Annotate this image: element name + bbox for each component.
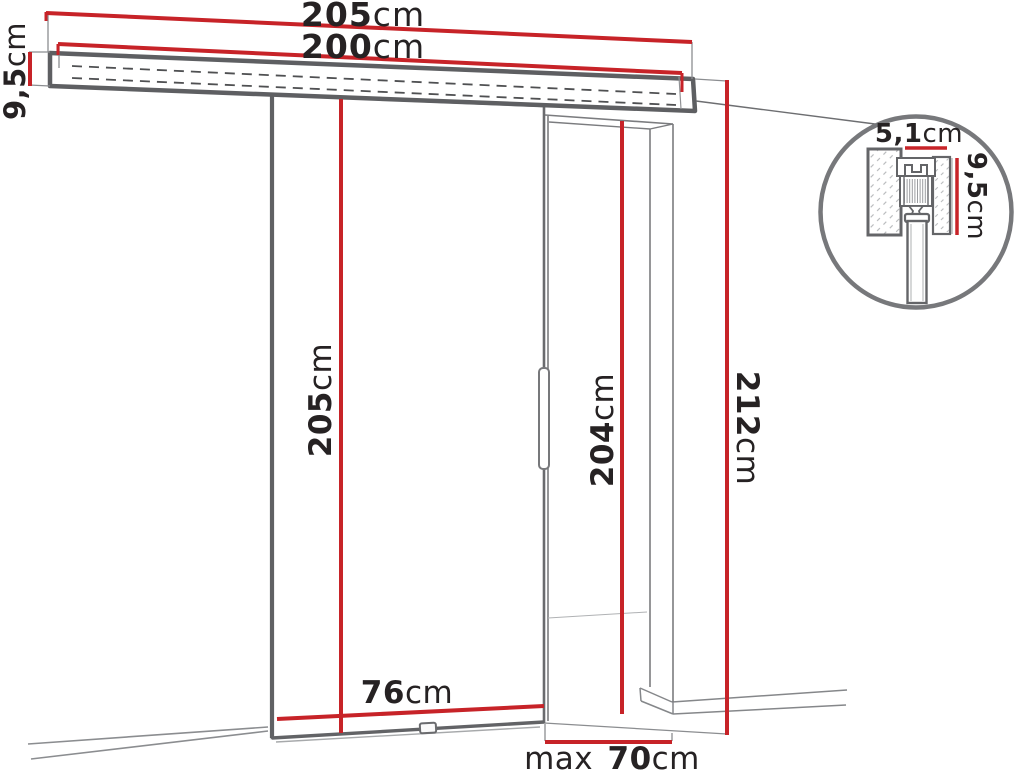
- drawing-canvas: 205cm 200cm 9,5cm 205cm 204cm 212cm 76cm…: [0, 0, 1020, 776]
- dim-rail-height-unit: cm: [0, 22, 32, 67]
- skirting-edge: [640, 688, 641, 701]
- dim-opening-height-value: 204: [585, 421, 621, 487]
- skirting-edge: [640, 688, 672, 702]
- dim-rail-track-value: 200: [301, 27, 373, 66]
- opening-faint-line: [548, 612, 647, 618]
- detail-door-section: [908, 221, 927, 303]
- dim-door-height-value: 205: [303, 391, 339, 457]
- dim-door-width-value: 76: [361, 675, 405, 711]
- dim-opening-width-prefix: max: [524, 741, 603, 776]
- dim-overall-height-value: 212: [729, 371, 765, 437]
- dim-detail-width-value: 5,1: [875, 119, 923, 149]
- floor-guide: [420, 723, 437, 734]
- floor-extension-line: [544, 723, 727, 734]
- door-handle: [539, 368, 549, 469]
- dim-opening-height-unit: cm: [585, 373, 621, 421]
- dim-overall-height-unit: cm: [729, 437, 765, 485]
- dim-detail-height-unit: cm: [961, 199, 991, 240]
- dim-overall-height-label: 212cm: [729, 371, 765, 485]
- dim-detail-width-unit: cm: [922, 119, 963, 149]
- dim-detail-height-value: 9,5: [961, 152, 991, 200]
- skirting-edge: [641, 701, 673, 714]
- door-opening: [544, 115, 727, 734]
- dim-door-height-unit: cm: [303, 343, 339, 391]
- skirting-board-right: [640, 688, 847, 714]
- dim-door-width-label: 76cm: [361, 675, 453, 711]
- extension-line: [695, 79, 727, 81]
- floor-lines-left: [28, 727, 268, 759]
- dim-detail-height-label: 9,5cm: [961, 152, 991, 240]
- opening-corner-edge: [650, 124, 673, 129]
- extension-line: [29, 85, 50, 86]
- dim-rail-track-unit: cm: [373, 27, 425, 66]
- skirting-edge: [673, 705, 846, 714]
- detail-leader-line: [696, 101, 875, 124]
- dim-opening-width-unit: cm: [652, 741, 700, 776]
- dim-rail-track-label: 200cm: [301, 27, 425, 66]
- dim-opening-width-value: 70: [608, 741, 652, 776]
- dim-door-height-label: 205cm: [303, 343, 339, 457]
- dim-rail-height-value: 9,5: [0, 67, 32, 120]
- opening-top-inner-edge: [549, 122, 650, 129]
- skirting-edge: [672, 690, 847, 702]
- dim-rail-height-label: 9,5cm: [0, 22, 32, 120]
- dim-opening-width-label: max 70cm: [524, 741, 700, 776]
- dim-detail-width-label: 5,1cm: [875, 119, 963, 149]
- dim-opening-height-label: 204cm: [585, 373, 621, 487]
- sliding-door-technical-drawing: 205cm 200cm 9,5cm 205cm 204cm 212cm 76cm…: [0, 0, 1020, 776]
- detail-circle: 5,1cm 9,5cm: [821, 106, 1012, 308]
- dim-door-width-unit: cm: [405, 675, 453, 711]
